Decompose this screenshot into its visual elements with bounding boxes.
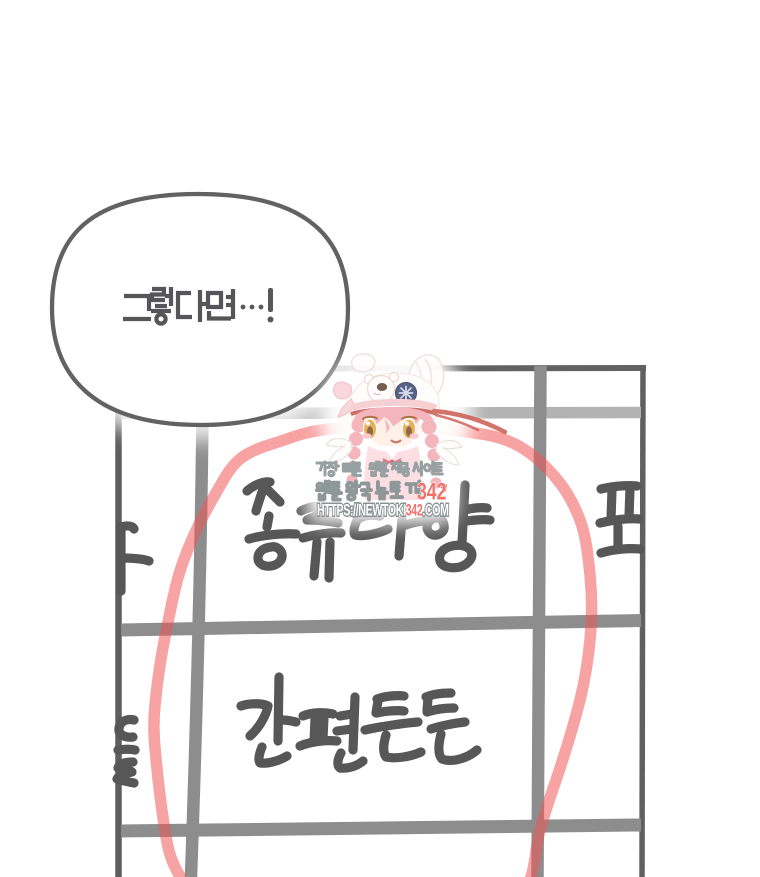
svg-text:HTTPS://NEWTOKI342.COM: HTTPS://NEWTOKI342.COM xyxy=(317,500,449,519)
